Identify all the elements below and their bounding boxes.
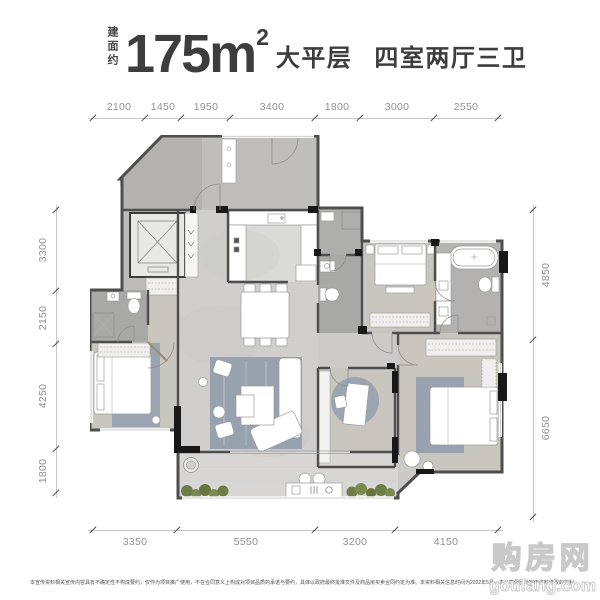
dining-table — [241, 292, 289, 338]
dim-label: 3300 — [37, 238, 49, 263]
fridge — [296, 265, 316, 281]
area-superscript: 2 — [256, 24, 267, 50]
stove-burner — [234, 247, 239, 252]
dim-label: 3400 — [260, 101, 285, 113]
bed-bench — [386, 287, 414, 293]
sink — [321, 212, 334, 221]
dim-label: 5550 — [234, 536, 259, 548]
dim-label: 2100 — [107, 101, 132, 113]
elevator — [130, 213, 198, 277]
pillow — [97, 355, 104, 381]
dim-label: 3000 — [385, 101, 410, 113]
dim-label: 4850 — [540, 263, 552, 288]
sink — [107, 292, 119, 301]
toilet-tank — [492, 277, 499, 292]
dim-label: 2150 — [37, 306, 49, 331]
dim-label: 1950 — [194, 101, 219, 113]
shoe-cabinet — [222, 139, 236, 183]
pillow — [490, 391, 497, 414]
pillow — [97, 384, 104, 410]
dim-label: 1800 — [325, 101, 350, 113]
page-title: 建面约 175m2 大平层 四室两厅三卫 — [104, 26, 527, 77]
kitchen-counter — [301, 225, 317, 267]
area-value: 175m2 — [125, 32, 266, 77]
dimension-ruler-left: 3300 2150 4250 1800 — [34, 210, 60, 493]
dim-label: 1800 — [37, 459, 49, 484]
dimension-ruler-top: 2100 1450 1950 3400 1800 3000 2550 — [93, 98, 498, 122]
side-table — [199, 378, 208, 387]
desk-chair — [334, 395, 347, 409]
planter-pot-inner — [187, 461, 196, 469]
kitchen-counter — [229, 225, 246, 281]
title-tag-rooms: 四室两厅三卫 — [374, 38, 527, 77]
watermark-domain: goufang.com — [489, 577, 596, 594]
ruler-line — [533, 205, 534, 522]
dim-label: 1450 — [151, 101, 176, 113]
watermark-cn: 购房网 — [489, 544, 596, 574]
pillow — [490, 418, 497, 441]
floorplan-page: { "header": { "area_prefix": "建面约", "are… — [0, 0, 600, 600]
dining-chair — [260, 337, 271, 346]
stove-burner — [234, 238, 239, 243]
nightstand — [366, 245, 374, 254]
dimension-ruler-right: 4850 6650 — [529, 210, 555, 517]
bed — [430, 387, 498, 445]
toilet — [479, 277, 492, 292]
dim-label: 3200 — [343, 536, 368, 548]
coffee-table — [236, 395, 254, 417]
lounge-chair — [404, 451, 420, 467]
faucet — [281, 217, 284, 220]
watermark: 购房网 goufang.com — [489, 544, 596, 594]
dim-label: 2550 — [454, 101, 479, 113]
toilet — [325, 288, 339, 301]
ruler-line — [56, 205, 57, 498]
sink — [320, 261, 335, 272]
window-seat — [319, 371, 330, 463]
toilet-tank — [127, 292, 141, 299]
pillow — [402, 246, 422, 254]
dim-label: 4150 — [434, 536, 459, 548]
pillow — [378, 246, 398, 254]
dining-chair — [244, 337, 255, 346]
ruler-line — [88, 118, 503, 119]
dining-chair — [276, 337, 287, 346]
dim-label: 4250 — [37, 384, 49, 409]
area-prefix: 建面约 — [104, 26, 120, 72]
stool — [152, 416, 160, 424]
dimension-ruler-bottom: 3350 5550 3200 4150 — [93, 524, 498, 550]
dim-label: 3350 — [123, 536, 148, 548]
vanity — [436, 253, 451, 325]
dim-label: 6650 — [540, 416, 552, 441]
floor-plan — [90, 135, 510, 500]
toilet — [128, 299, 140, 314]
title-tag-layout: 大平层 — [276, 38, 353, 77]
side-table — [213, 406, 225, 418]
ruler-line — [88, 530, 503, 531]
